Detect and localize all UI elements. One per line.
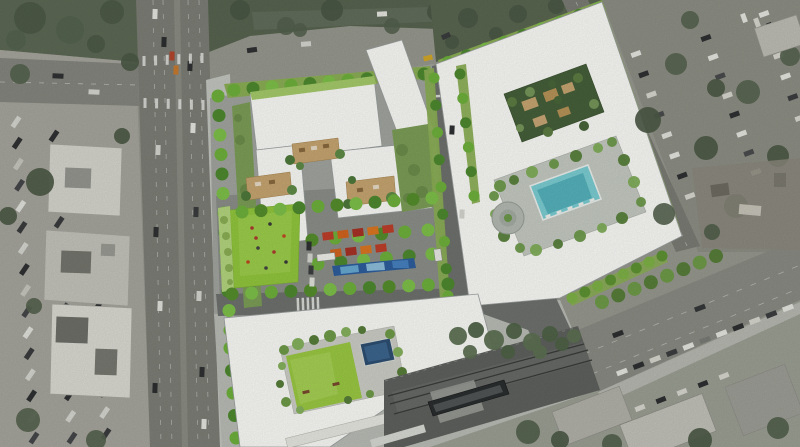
- site-plan-canvas: [0, 0, 800, 447]
- aerial-site-plan-screenshot: [0, 0, 800, 447]
- photo-grain-overlay: [0, 0, 800, 447]
